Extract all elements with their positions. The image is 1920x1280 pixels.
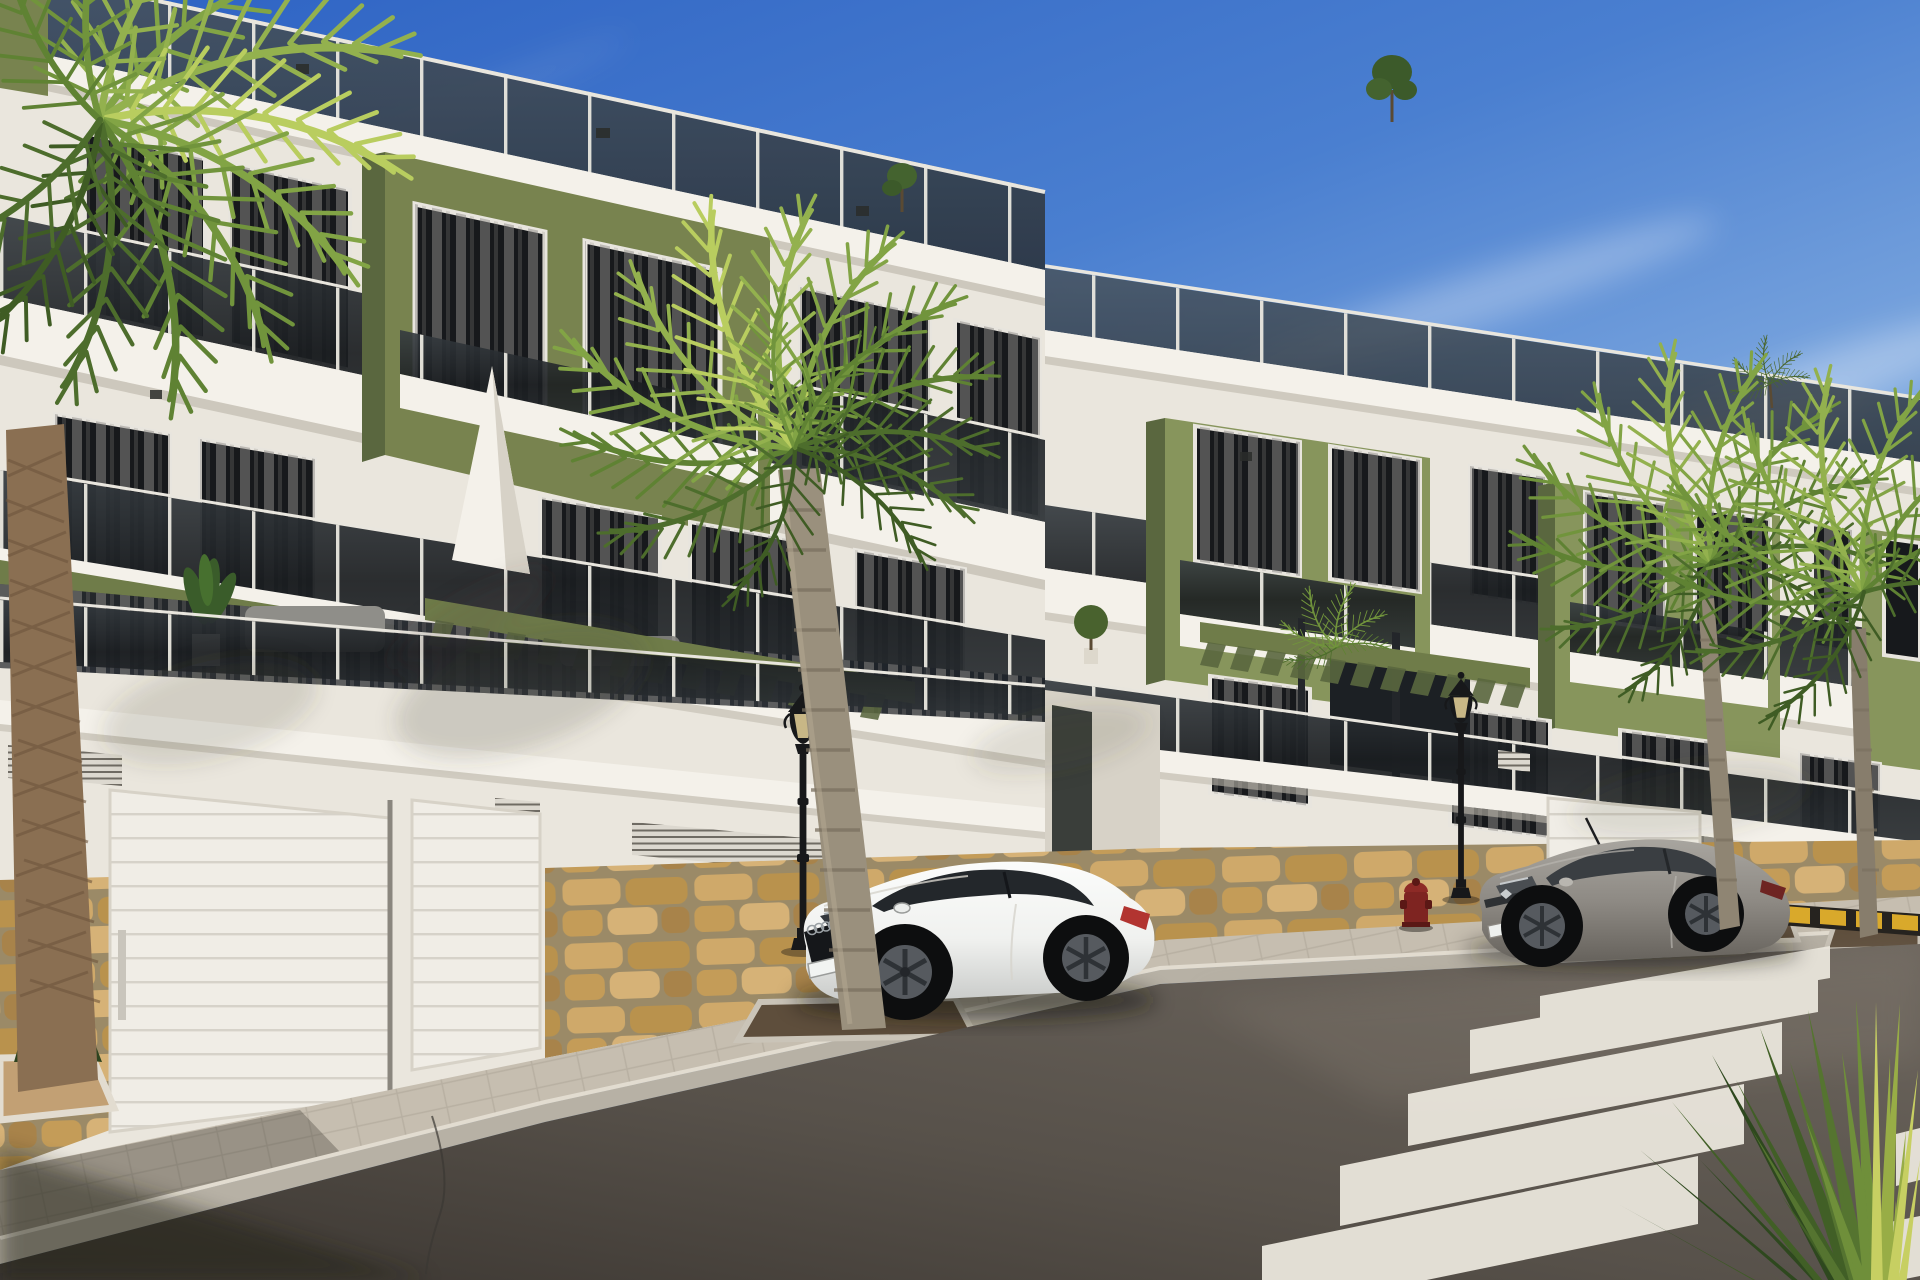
render-canvas <box>0 0 1920 1280</box>
garage-door <box>412 800 540 1070</box>
side-mirror <box>894 903 910 913</box>
garage-door <box>110 790 390 1132</box>
architectural-render: Photorealistic architectural rendering o… <box>0 0 1920 1280</box>
side-mirror <box>1559 878 1573 887</box>
